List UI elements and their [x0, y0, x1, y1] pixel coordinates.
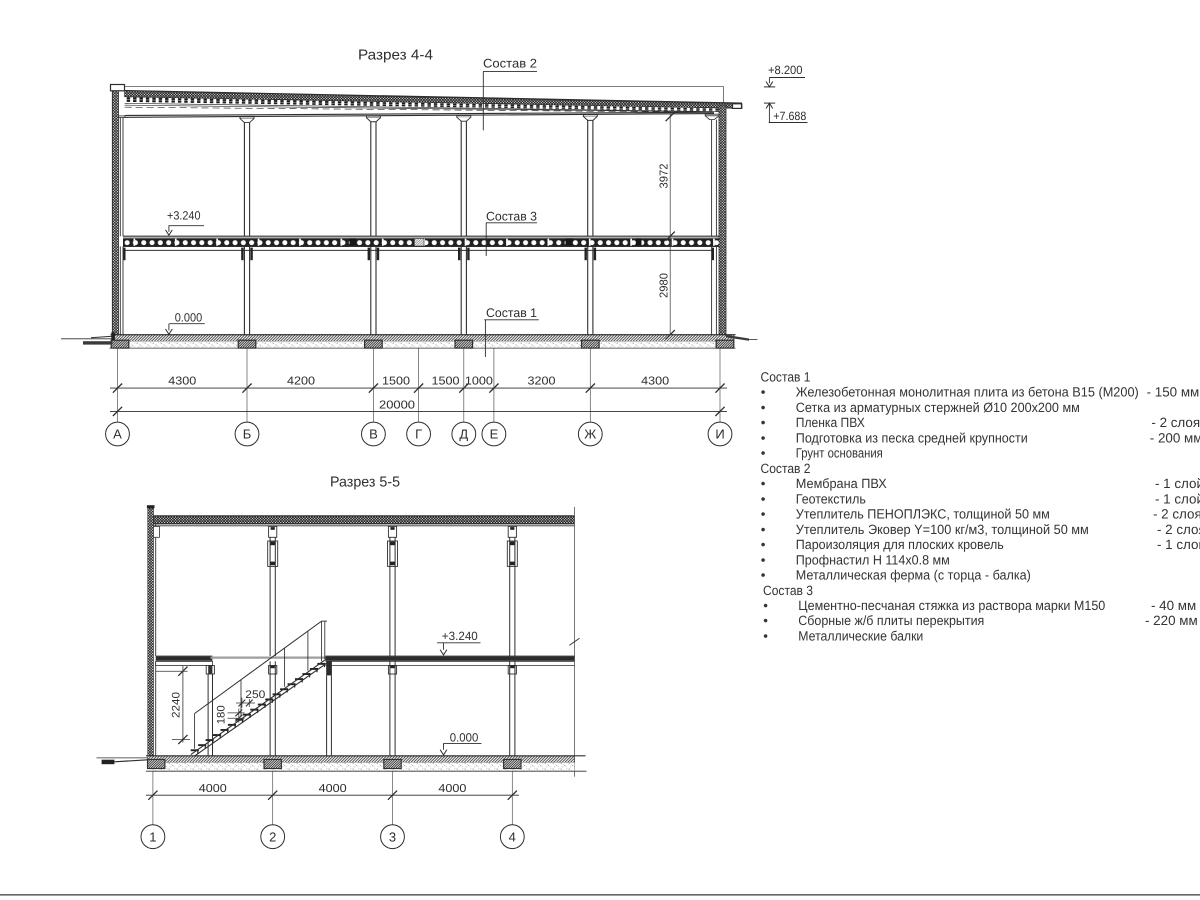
svg-text:250: 250 [245, 689, 265, 701]
svg-text:•: • [761, 430, 766, 445]
svg-text:4000: 4000 [438, 783, 466, 795]
svg-text:А: А [113, 427, 122, 442]
svg-text:4: 4 [509, 829, 516, 844]
svg-text:•: • [761, 476, 766, 491]
svg-text:1500: 1500 [382, 375, 410, 387]
svg-text:4000: 4000 [319, 783, 347, 795]
svg-text:0.000: 0.000 [175, 310, 203, 324]
svg-text:2980: 2980 [658, 273, 670, 298]
svg-text:Железобетонная монолитная плит: Железобетонная монолитная плита из бетон… [796, 385, 1139, 400]
svg-text:Разрез 4-4: Разрез 4-4 [358, 48, 433, 64]
svg-text:1: 1 [149, 829, 156, 844]
svg-text:Состав 2: Состав 2 [483, 57, 537, 71]
svg-text:Цементно-песчаная стяжка из ра: Цементно-песчаная стяжка из раствора мар… [798, 598, 1105, 613]
svg-text:Сборные ж/б плиты перекрытия: Сборные ж/б плиты перекрытия [798, 613, 984, 628]
svg-text:4200: 4200 [287, 375, 315, 387]
svg-text:•: • [761, 522, 766, 537]
svg-text:20000: 20000 [379, 400, 415, 412]
svg-text:+3.240: +3.240 [442, 629, 478, 643]
svg-text:Е: Е [490, 427, 499, 442]
svg-text:В: В [369, 427, 378, 442]
svg-text:Ж: Ж [584, 427, 596, 442]
svg-text:И: И [715, 427, 724, 442]
svg-text:+3.240: +3.240 [167, 208, 201, 222]
svg-text:4000: 4000 [199, 783, 227, 795]
svg-text:•: • [763, 628, 768, 643]
svg-text:Состав 3: Состав 3 [486, 210, 537, 224]
svg-text:•: • [761, 415, 766, 430]
svg-text:Профнастил Н 114х0.8 мм: Профнастил Н 114х0.8 мм [796, 552, 950, 567]
svg-text:180: 180 [215, 705, 227, 724]
svg-text:- 2 слоя: - 2 слоя [1157, 522, 1200, 537]
svg-text:3200: 3200 [528, 375, 556, 387]
svg-text:Сетка из арматурных стержней Ø: Сетка из арматурных стержней Ø10 200х200… [796, 400, 1080, 415]
svg-text:- 1 слой: - 1 слой [1155, 491, 1200, 506]
svg-text:•: • [761, 537, 766, 552]
svg-text:Металлические балки: Металлические балки [798, 628, 923, 643]
svg-text:•: • [763, 598, 768, 613]
svg-text:4300: 4300 [168, 375, 196, 387]
svg-text:•: • [761, 385, 766, 400]
svg-text:•: • [761, 400, 766, 415]
svg-text:4300: 4300 [641, 375, 669, 387]
svg-text:- 220 мм: - 220 мм [1145, 613, 1198, 628]
svg-text:Утеплитель ПЕНОПЛЭКС, толщиной: Утеплитель ПЕНОПЛЭКС, толщиной 50 мм [796, 507, 1050, 522]
svg-text:Подготовка из песка средней кр: Подготовка из песка средней крупности [796, 430, 1028, 445]
svg-text:- 1 слой: - 1 слой [1155, 476, 1200, 491]
svg-text:•: • [761, 446, 766, 461]
svg-text:Состав 3: Состав 3 [763, 583, 813, 598]
svg-text:Д: Д [459, 427, 468, 442]
svg-text:Б: Б [243, 427, 252, 442]
svg-text:Грунт основания: Грунт основания [796, 446, 883, 461]
svg-text:•: • [761, 552, 766, 567]
svg-text:- 200 мм: - 200 мм [1150, 430, 1200, 445]
svg-text:•: • [763, 613, 768, 628]
svg-text:Пленка ПВХ: Пленка ПВХ [796, 415, 865, 430]
svg-text:1000: 1000 [465, 375, 493, 387]
svg-text:- 2 слоя: - 2 слоя [1151, 415, 1200, 430]
svg-text:0.000: 0.000 [450, 731, 479, 745]
svg-text:3972: 3972 [658, 164, 670, 189]
svg-text:•: • [761, 568, 766, 583]
svg-text:2240: 2240 [171, 692, 183, 718]
svg-text:Утеплитель Эковер Y=100 кг/м3,: Утеплитель Эковер Y=100 кг/м3, толщиной … [796, 522, 1089, 537]
svg-text:3: 3 [389, 829, 396, 844]
svg-text:Г: Г [415, 427, 422, 442]
svg-text:1500: 1500 [432, 375, 460, 387]
svg-text:+8.200: +8.200 [768, 63, 803, 77]
svg-text:Состав 1: Состав 1 [486, 306, 537, 320]
svg-text:Металлическая ферма (с торца -: Металлическая ферма (с торца - балка) [796, 568, 1031, 583]
svg-text:Геотекстиль: Геотекстиль [796, 491, 866, 506]
svg-text:Состав 2: Состав 2 [761, 461, 811, 476]
svg-text:Пароизоляция для плоских крове: Пароизоляция для плоских кровель [796, 537, 1004, 552]
svg-text:+7.688: +7.688 [773, 109, 806, 123]
svg-text:•: • [761, 507, 766, 522]
svg-text:Состав 1: Состав 1 [761, 369, 811, 384]
svg-text:- 1 слой: - 1 слой [1157, 537, 1200, 552]
svg-text:2: 2 [269, 829, 276, 844]
svg-text:Разрез 5-5: Разрез 5-5 [330, 475, 400, 491]
svg-text:Мембрана ПВХ: Мембрана ПВХ [796, 476, 887, 491]
svg-text:- 150 мм: - 150 мм [1147, 385, 1200, 400]
svg-text:- 2 слоя: - 2 слоя [1153, 507, 1200, 522]
svg-text:- 40 мм: - 40 мм [1151, 598, 1196, 613]
svg-text:•: • [761, 491, 766, 506]
